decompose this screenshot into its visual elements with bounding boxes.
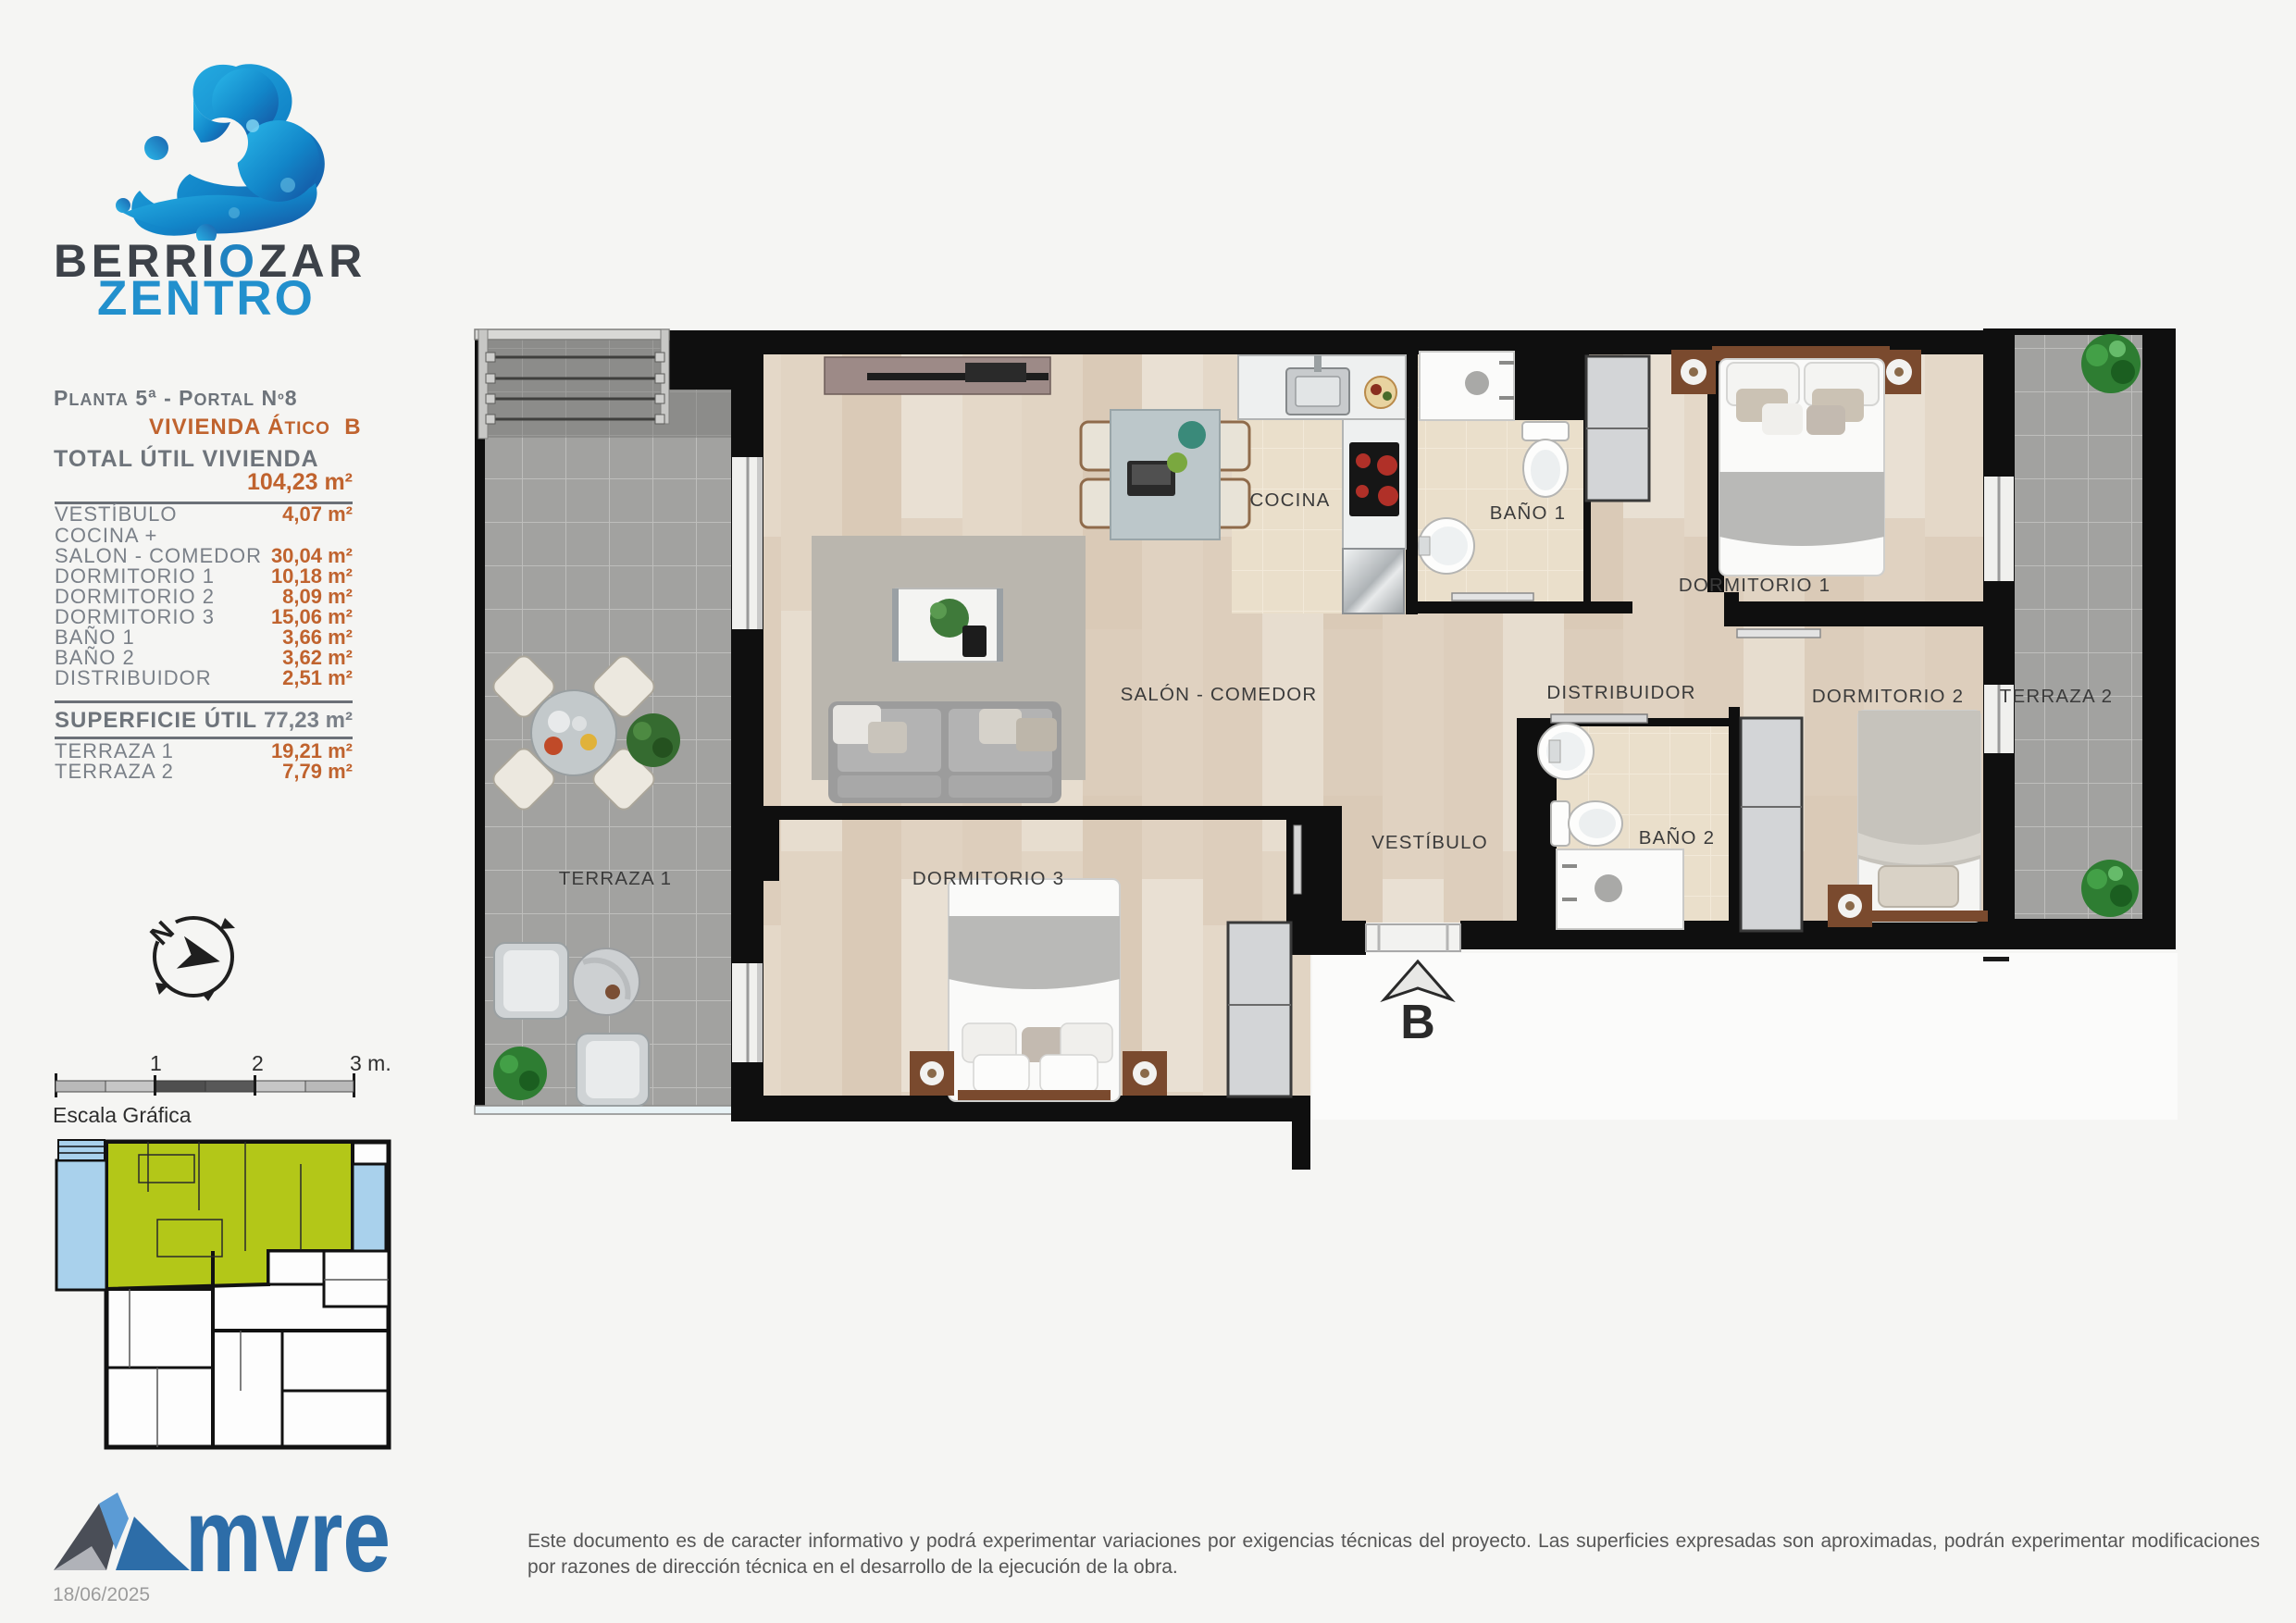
svg-text:VESTÍBULO: VESTÍBULO xyxy=(1371,832,1488,853)
svg-text:SALÓN - COMEDOR: SALÓN - COMEDOR xyxy=(1121,684,1318,705)
svg-text:DORMITORIO 3: DORMITORIO 3 xyxy=(912,868,1064,889)
svg-text:B: B xyxy=(1400,996,1435,1049)
svg-text:DORMITORIO 1: DORMITORIO 1 xyxy=(1679,575,1831,596)
svg-text:mvre: mvre xyxy=(185,1479,391,1580)
svg-text:BAÑO 2: BAÑO 2 xyxy=(1639,827,1715,849)
svg-text:DISTRIBUIDOR: DISTRIBUIDOR xyxy=(1546,682,1695,703)
svg-text:BAÑO 1: BAÑO 1 xyxy=(1490,502,1566,524)
svg-text:COCINA: COCINA xyxy=(1250,489,1331,511)
svg-text:TERRAZA 1: TERRAZA 1 xyxy=(559,868,672,889)
svg-text:TERRAZA 2: TERRAZA 2 xyxy=(2000,686,2113,707)
svg-text:DORMITORIO 2: DORMITORIO 2 xyxy=(1812,686,1964,707)
